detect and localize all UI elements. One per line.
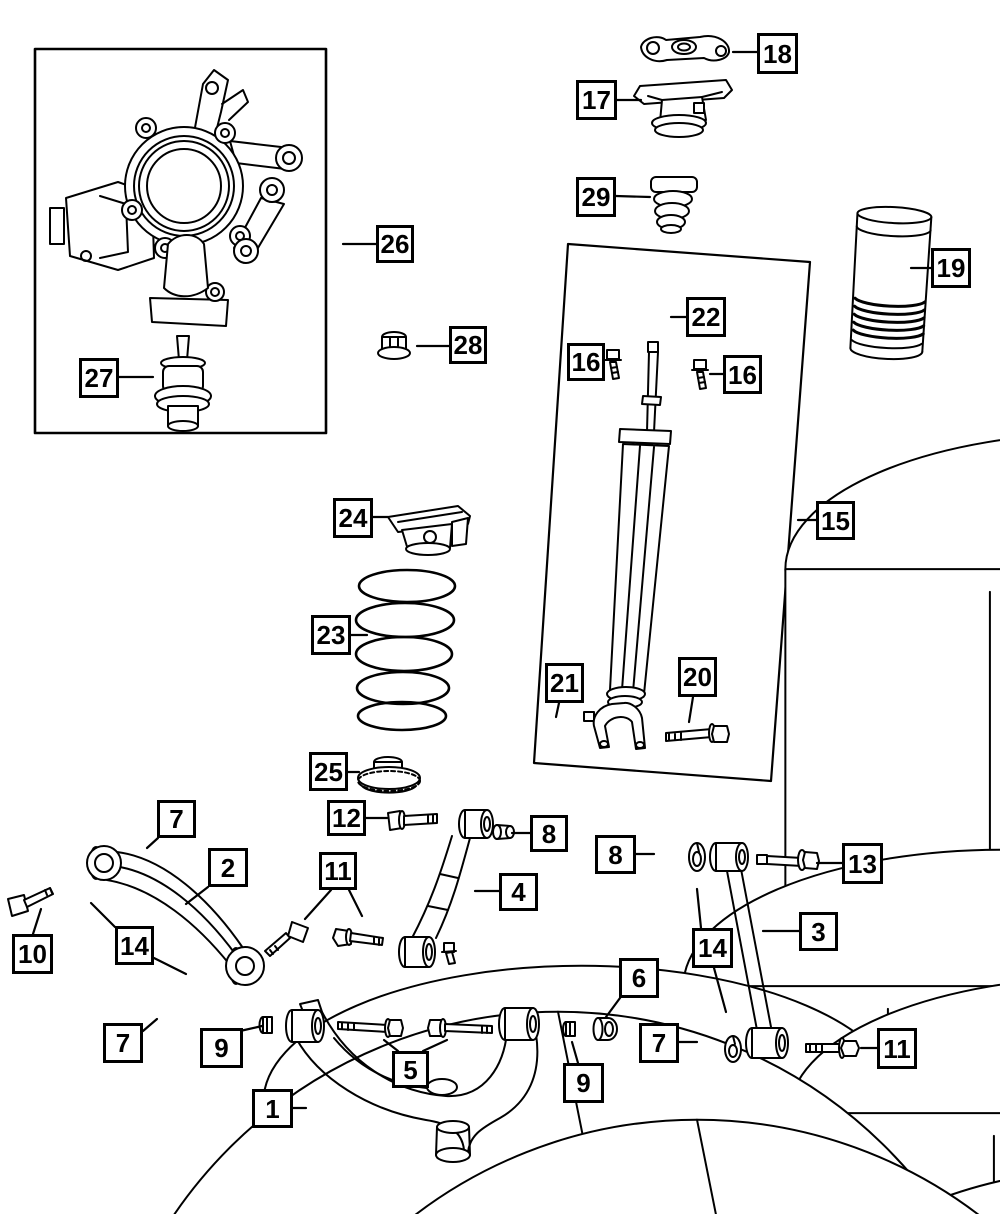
bolt-11-left-b-drawing [333,929,383,946]
cap-6-drawing [594,1018,618,1040]
callout-27[interactable]: 27 [79,358,119,398]
callout-9-1[interactable]: 9 [200,1028,243,1068]
callout-10[interactable]: 10 [12,934,53,974]
callout-6[interactable]: 6 [619,958,659,998]
coil-spring-drawing [356,570,455,730]
leader-line-7-2 [143,1019,157,1031]
mount-bolt-right-drawing [692,360,708,389]
callout-7-2[interactable]: 7 [103,1023,143,1063]
leader-line-7-1 [147,838,158,848]
callout-28[interactable]: 28 [449,326,487,364]
callout-20[interactable]: 20 [678,657,717,697]
bolt-12-drawing [388,811,437,830]
spring-seat-drawing [388,506,470,555]
dust-shield-drawing [850,205,932,361]
bolt-7-mid-drawing [442,943,456,964]
callout-14-1[interactable]: 14 [115,926,154,965]
bolt-9-left-drawing [260,1017,273,1033]
callout-13[interactable]: 13 [842,843,883,884]
callout-24[interactable]: 24 [333,498,373,538]
callout-26[interactable]: 26 [376,225,414,263]
leader-line-11-1 [305,890,331,919]
spring-isolator-drawing [358,757,420,793]
leader-line-21 [556,703,559,717]
callout-25[interactable]: 25 [309,752,348,791]
callout-11-1[interactable]: 11 [319,852,357,890]
callout-17[interactable]: 17 [576,80,617,120]
washer-14-topright-drawing [689,843,705,871]
leader-line-14-2 [697,889,701,928]
jounce-bumper-drawing [651,177,697,233]
callout-22[interactable]: 22 [686,297,726,337]
leader-line-29 [616,196,650,197]
shock-absorber-drawing [584,342,671,749]
mount-bracket-drawing [641,36,729,61]
callout-8-2[interactable]: 8 [595,835,636,874]
nut-9-right-drawing [563,1022,575,1036]
callout-3[interactable]: 3 [799,912,838,951]
parts-diagram-page: 2627281817291922161615212024232512811472… [0,0,1000,1214]
callout-7-1[interactable]: 7 [157,800,196,838]
fork-bolt-drawing [666,724,729,742]
callout-15[interactable]: 15 [816,501,855,540]
bolt-10-drawing [8,888,53,916]
callout-11-2[interactable]: 11 [877,1028,917,1069]
callout-23[interactable]: 23 [311,615,351,655]
mount-bolt-left-drawing [605,350,621,379]
callout-16-2[interactable]: 16 [723,355,762,394]
knuckle-drawing [50,70,302,326]
callout-2[interactable]: 2 [208,848,248,887]
leader-line-20 [689,697,693,722]
callout-19[interactable]: 19 [931,248,971,288]
leader-line-14-1 [91,903,115,927]
callout-29[interactable]: 29 [576,177,616,217]
callout-7-3[interactable]: 7 [639,1023,679,1063]
diagram-canvas [0,0,1000,1214]
leader-line-11-1 [349,890,362,916]
bushing-cap-drawing [493,825,514,839]
callout-14-2[interactable]: 14 [692,928,733,968]
ball-joint-drawing [155,336,211,431]
leader-line-9-1 [240,1026,262,1031]
callout-9-2[interactable]: 9 [563,1063,604,1103]
callout-5[interactable]: 5 [392,1051,429,1088]
shock-mount-drawing [634,80,732,137]
leader-line-10 [33,909,41,934]
callout-12[interactable]: 12 [327,800,366,836]
hub-nut-drawing [378,332,410,359]
bolt-11-left-a-drawing [265,922,308,956]
callout-16-1[interactable]: 16 [567,343,605,381]
callout-18[interactable]: 18 [757,33,798,74]
leader-line-14-1 [154,958,186,974]
callout-8-1[interactable]: 8 [530,815,568,852]
callout-21[interactable]: 21 [545,663,584,703]
callout-1[interactable]: 1 [252,1089,293,1128]
washer-14-bottomright-drawing [725,1036,741,1062]
callout-4[interactable]: 4 [499,873,538,911]
